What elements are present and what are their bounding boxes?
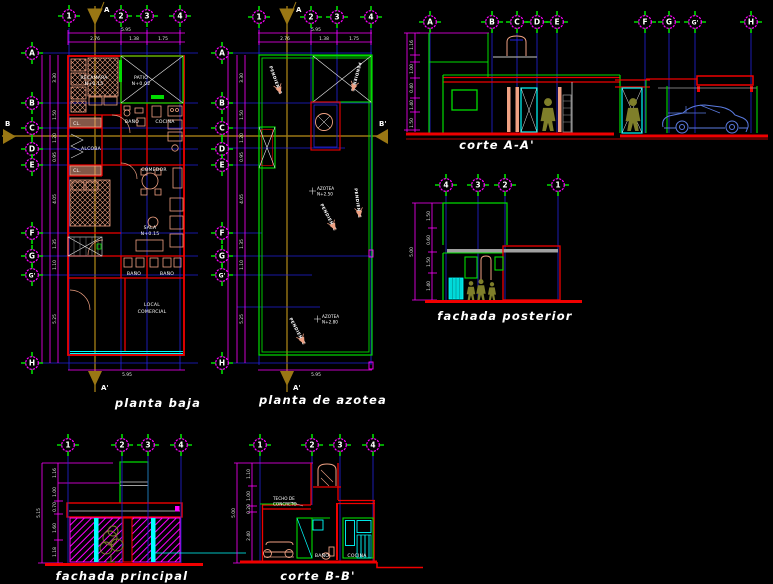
grid-bubble-label: 2 [119,441,124,450]
svg-text:COMEDOR: COMEDOR [141,167,167,173]
svg-text:N+2.50: N+2.50 [317,192,333,197]
title-corte-bb: corte B-B' [280,569,356,583]
grid-bubble-label: 4 [443,181,448,190]
svg-text:5.95: 5.95 [311,372,321,378]
grid-bubble-label: 4 [178,441,183,450]
svg-text:3.30: 3.30 [52,73,58,83]
svg-text:BAÑO: BAÑO [127,270,141,277]
grid-bubble-label: 4 [368,13,373,22]
title-fachada-posterior: fachada posterior [437,309,573,323]
marker-a-prime: A' [101,384,109,392]
svg-text:2.76: 2.76 [90,36,100,42]
svg-text:PATIO: PATIO [134,75,148,81]
title-corte-aa: corte A-A' [459,138,535,152]
marker-a: A [104,6,110,14]
grid-bubble-label: 2 [309,441,314,450]
grid-bubble-label: D [534,18,540,27]
grid-bubble-label: 2 [308,13,313,22]
svg-text:N+2.80: N+2.80 [322,320,338,325]
svg-text:1.00: 1.00 [409,64,415,74]
grid-bubble-label: 3 [475,181,480,190]
svg-text:0.95: 0.95 [239,152,245,162]
grid-bubble-label: 4 [177,12,182,21]
svg-text:1.75: 1.75 [158,36,168,42]
grid-bubble-label: B [219,99,225,108]
svg-text:1.40: 1.40 [409,100,415,110]
cad-canvas: A A' A A' B B' 5.95 2.76 1.38 [0,0,773,584]
svg-text:5.95: 5.95 [122,372,132,378]
svg-text:1.16: 1.16 [52,468,58,478]
grid-bubble-label: G' [219,273,226,280]
svg-text:1.35: 1.35 [239,239,245,249]
grid-bubble-label: D [29,145,35,154]
svg-text:1.00: 1.00 [52,487,58,497]
grid-bubble-label: E [554,18,559,27]
grid-bubble-label: 1 [66,12,71,21]
svg-text:0.70: 0.70 [52,502,58,512]
title-planta-baja: planta baja [114,396,201,410]
grid-bubble-label: G [219,252,225,261]
grid-bubble-label: F [642,18,647,27]
svg-text:1.50: 1.50 [426,211,432,221]
grid-bubble-label: G [666,18,672,27]
svg-text:COCINA: COCINA [155,119,175,125]
svg-text:2.40: 2.40 [246,531,252,541]
svg-text:0.95: 0.95 [52,152,58,162]
grid-bubble-label: 1 [65,441,70,450]
svg-text:1.50: 1.50 [426,257,432,267]
svg-text:N+0.15: N+0.15 [85,81,104,87]
svg-text:5.15: 5.15 [36,508,42,518]
svg-text:1.50: 1.50 [239,110,245,120]
grid-bubble-label: E [219,161,224,170]
svg-text:1.50: 1.50 [409,118,415,128]
svg-text:0.40: 0.40 [409,83,415,93]
drawing-sheet: A A' A A' B B' 5.95 2.76 1.38 [0,0,773,584]
svg-text:LOCAL: LOCAL [144,302,160,308]
svg-text:1.16: 1.16 [409,40,415,50]
svg-text:1.35: 1.35 [52,239,58,249]
svg-text:COMERCIAL: COMERCIAL [138,309,167,315]
svg-text:1.38: 1.38 [319,36,329,42]
grid-bubble-label: 3 [144,12,149,21]
grid-bubble-label: C [219,124,225,133]
svg-text:2.76: 2.76 [280,36,290,42]
marker-b-prime: B' [379,120,386,128]
svg-text:1.00: 1.00 [246,491,252,501]
grid-bubble-label: 3 [337,441,342,450]
svg-text:CL.: CL. [73,168,81,174]
svg-text:5.95: 5.95 [311,27,321,33]
svg-text:SALA: SALA [144,225,157,231]
svg-text:BAÑO: BAÑO [315,552,329,559]
svg-text:1.10: 1.10 [239,260,245,270]
marker-b: B [5,120,10,128]
svg-text:0.20: 0.20 [246,504,252,514]
svg-text:CL.: CL. [73,121,81,127]
grid-bubble-label: H [29,359,35,368]
svg-text:1.50: 1.50 [52,110,58,120]
svg-text:5.00: 5.00 [231,508,237,518]
svg-text:BAÑO: BAÑO [160,270,174,277]
svg-text:4.05: 4.05 [239,194,245,204]
svg-text:1.75: 1.75 [349,36,359,42]
grid-bubble-label: F [29,229,34,238]
svg-text:N+0.02: N+0.02 [132,81,151,87]
grid-bubble-label: G [29,252,35,261]
svg-text:ALCOBA: ALCOBA [81,146,102,152]
grid-bubble-label: F [219,229,224,238]
grid-bubble-label: 2 [502,181,507,190]
svg-text:BAÑO: BAÑO [125,118,139,125]
svg-text:5.25: 5.25 [239,314,245,324]
svg-text:0.60: 0.60 [426,235,432,245]
grid-bubble-label: A [219,49,225,58]
svg-text:3.30: 3.30 [239,73,245,83]
grid-bubble-label: C [514,18,520,27]
grid-bubble-label: B [489,18,495,27]
grid-bubble-label: 3 [145,441,150,450]
marker-a2-prime: A' [293,384,301,392]
svg-text:CONCRETO: CONCRETO [273,502,297,507]
grid-bubble-label: H [219,359,225,368]
svg-text:5.25: 5.25 [52,314,58,324]
svg-text:TECHO DE: TECHO DE [272,496,295,501]
grid-bubble-label: C [29,124,35,133]
svg-text:5.95: 5.95 [121,27,131,33]
title-fachada-principal: fachada principal [56,569,189,583]
grid-bubble-label: A [427,18,433,27]
grid-bubble-label: 1 [555,181,560,190]
svg-text:5.00: 5.00 [409,247,415,257]
grid-bubble-label: G' [29,273,36,280]
svg-text:AZOTEA: AZOTEA [317,186,334,191]
grid-bubble-label: A [29,49,35,58]
grid-bubble-label: 1 [257,441,262,450]
marker-a2: A [296,6,302,14]
svg-text:RECAMARA: RECAMARA [80,75,108,81]
svg-text:4.05: 4.05 [52,194,58,204]
grid-bubble-label: H [748,18,754,27]
svg-text:1.20: 1.20 [239,133,245,143]
grid-bubble-label: 4 [370,441,375,450]
svg-text:AZOTEA: AZOTEA [322,314,339,319]
grid-bubble-label: 2 [118,12,123,21]
svg-text:N+0.15: N+0.15 [141,231,160,237]
title-planta-azotea: planta de azotea [258,393,387,407]
svg-text:1.10: 1.10 [52,260,58,270]
grid-bubble-label: B [29,99,35,108]
grid-bubble-label: 1 [256,13,261,22]
grid-bubble-label: D [219,145,225,154]
svg-text:1.20: 1.20 [52,133,58,143]
svg-text:1.18: 1.18 [52,547,58,557]
svg-text:1.40: 1.40 [426,281,432,291]
svg-text:COCINA: COCINA [347,553,367,559]
svg-text:1.60: 1.60 [52,523,58,533]
grid-bubble-label: E [29,161,34,170]
svg-text:1.10: 1.10 [246,469,252,479]
svg-text:1.38: 1.38 [129,36,139,42]
grid-bubble-label: G' [692,20,699,27]
grid-bubble-label: 3 [334,13,339,22]
